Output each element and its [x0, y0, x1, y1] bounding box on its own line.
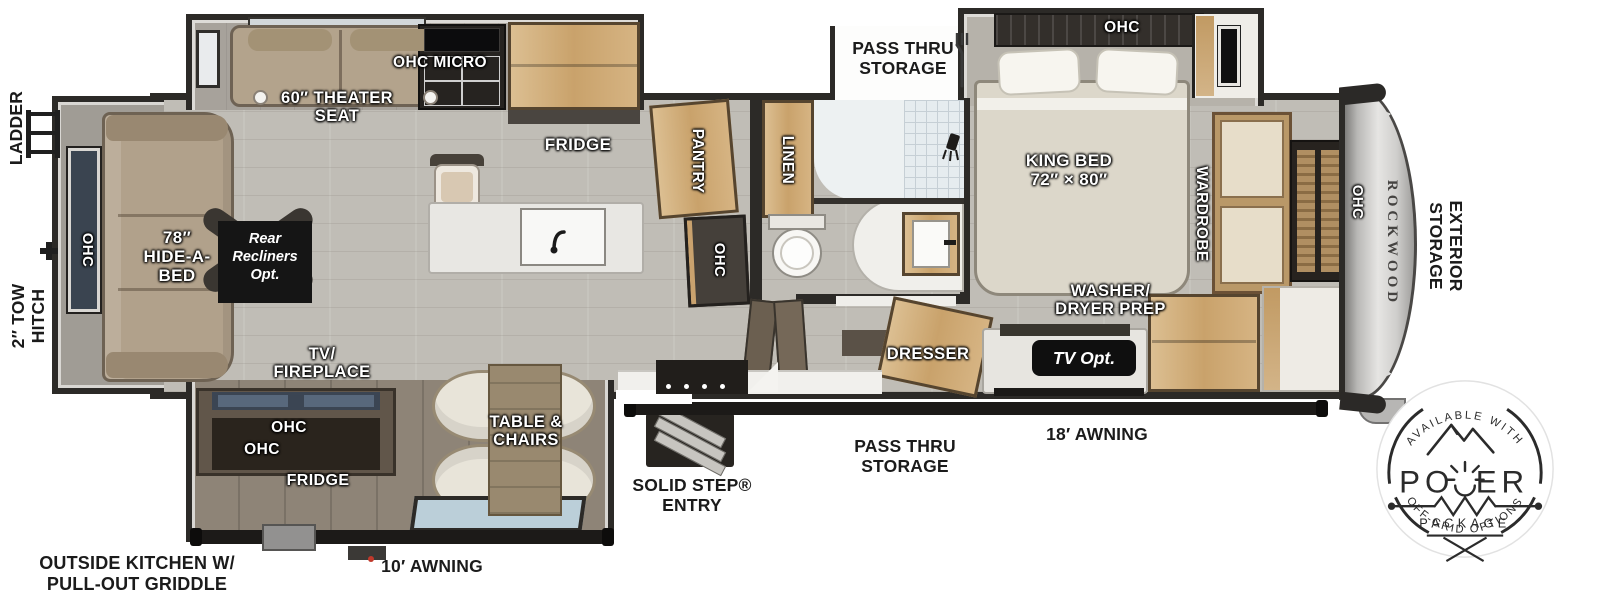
shower-glass — [814, 198, 964, 204]
outside-ohc-upper-label: OHC — [259, 419, 319, 436]
solid-step — [646, 413, 734, 467]
awning-rear-cap-left — [190, 528, 202, 546]
bed-slide-cabinet-wood — [1196, 16, 1214, 96]
faucet-icon — [548, 220, 570, 256]
outside-kitchen-label: OUTSIDE KITCHEN W/ PULL-OUT GRIDDLE — [12, 553, 262, 595]
hide-a-bed-label: 78″ HIDE-A- BED — [118, 228, 236, 285]
wardrobe-panel-2 — [1220, 206, 1284, 284]
vanity-faucet — [944, 240, 956, 245]
cupholder-1 — [253, 90, 268, 105]
fridge-label: FRIDGE — [518, 135, 638, 154]
dresser-label: DRESSER — [868, 345, 988, 363]
bed-ohc-label: OHC — [1062, 19, 1182, 36]
bed-fold — [977, 98, 1187, 110]
tv-screen — [1000, 324, 1130, 336]
awning-rear-bar — [194, 530, 608, 544]
outside-ohc-lower-label: OHC — [232, 441, 292, 458]
brand-logo-text: ROCKWOOD — [1384, 180, 1400, 306]
badge-package: PACKAGE — [1419, 516, 1510, 531]
pantry-ohc-label: OHC — [711, 230, 727, 290]
tv-fireplace-label: TV/ FIREPLACE — [262, 345, 382, 382]
bed-slide-window — [1218, 26, 1240, 86]
front-cap — [1339, 88, 1417, 400]
sofa-armrest-bottom — [106, 352, 228, 378]
theater-headrest-1 — [248, 29, 332, 51]
exterior-storage-label: EXTERIOR STORAGE — [1426, 186, 1466, 306]
awning-speaker-box — [262, 524, 316, 551]
ladder-icon — [26, 110, 60, 158]
badge-power-left: PO — [1399, 464, 1454, 499]
front-ohc-slats-2 — [1321, 150, 1339, 272]
bath-left-wall — [750, 98, 762, 308]
power-package-badge: AVAILABLE WITH OFF-GRID OPTIONS PO ER PA… — [1372, 376, 1558, 562]
front-dresser-split-1 — [1152, 340, 1256, 343]
table-chairs-label: TABLE & CHAIRS — [466, 413, 586, 450]
front-ohc-label: OHC — [1349, 174, 1365, 230]
king-bed-label: KING BED 72″ × 80″ — [989, 151, 1149, 189]
rear-ohc-label: OHC — [77, 220, 95, 280]
brand-logo: ROCKWOOD — [1380, 158, 1400, 328]
awning-front-label: 18′ AWNING — [1017, 424, 1177, 444]
cupholder-3 — [423, 90, 438, 105]
pantry-label: PANTRY — [688, 106, 706, 216]
front-ohc-slats-1 — [1297, 150, 1315, 272]
entry-door-wedge — [748, 362, 778, 392]
griddle-unit — [656, 360, 748, 394]
wardrobe-label: WARDROBE — [1192, 139, 1210, 289]
stool-cushion — [441, 172, 473, 202]
outside-fridge-label: FRIDGE — [268, 472, 368, 490]
pillow-1 — [997, 48, 1081, 96]
front-lower-cabinet-wood — [1264, 288, 1280, 390]
linen-label: LINEN — [780, 120, 796, 200]
microwave — [424, 28, 500, 52]
washer-dryer-label: WASHER/ DRYER PREP — [1028, 282, 1193, 319]
outside-tv-screen — [212, 392, 380, 410]
pillow-2 — [1095, 48, 1179, 96]
tv-stand-front — [994, 388, 1144, 396]
ohc-micro-label: OHC MICRO — [378, 54, 502, 71]
theater-headrest-2 — [350, 29, 434, 51]
awning-rear-label: 10′ AWNING — [352, 556, 512, 576]
sofa-armrest-top — [106, 115, 228, 141]
pass-thru-top-label: PASS THRU STORAGE — [843, 38, 963, 79]
fridge-vent — [508, 110, 640, 124]
tv-opt-chip: TV Opt. — [1032, 340, 1136, 376]
shower-head-icon — [934, 132, 962, 164]
tow-hitch-label: 2″ TOW HITCH — [8, 256, 46, 376]
ladder-label: LADDER — [6, 73, 26, 183]
pass-thru-bottom-label: PASS THRU STORAGE — [825, 436, 985, 477]
awning-front-cap-right — [1316, 400, 1328, 417]
awning-front-bar — [628, 402, 1324, 415]
awning-rear-cap-right — [602, 528, 614, 546]
badge-power-right: ER — [1476, 464, 1529, 499]
floorplan-diagram: ROCKWOOD EXTERIOR STORAGE OHC 78″ HIDE-A… — [0, 0, 1600, 602]
solid-step-label: SOLID STEP® ENTRY — [612, 475, 772, 516]
wardrobe-panel-1 — [1220, 120, 1284, 198]
toilet-seat — [780, 236, 814, 270]
fridge-door-split — [511, 64, 637, 67]
theater-seat-label: 60″ THEATER SEAT — [267, 89, 407, 126]
slide-end-window — [196, 30, 220, 88]
